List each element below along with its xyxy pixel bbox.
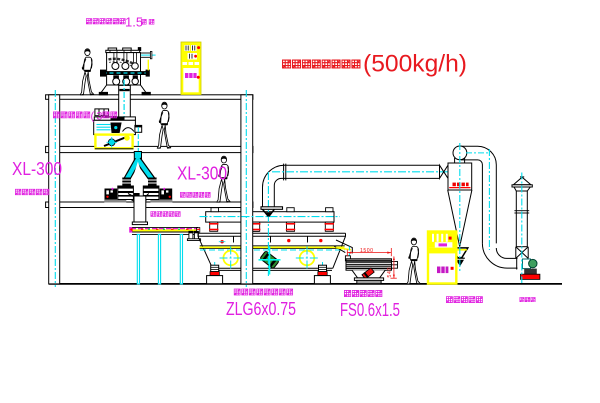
svg-text:XL-300: XL-300: [177, 163, 227, 184]
svg-text:540: 540: [387, 267, 393, 277]
svg-text:(3: (3: [91, 110, 103, 122]
svg-text:FS0.6x1.5: FS0.6x1.5: [340, 300, 400, 320]
svg-text:1.5: 1.5: [125, 15, 143, 30]
svg-text:(500kg/h): (500kg/h): [363, 51, 467, 78]
svg-text:1500: 1500: [360, 248, 373, 254]
svg-text:ZLG6x0.75: ZLG6x0.75: [226, 299, 296, 319]
svg-text:XL-300: XL-300: [12, 158, 62, 179]
